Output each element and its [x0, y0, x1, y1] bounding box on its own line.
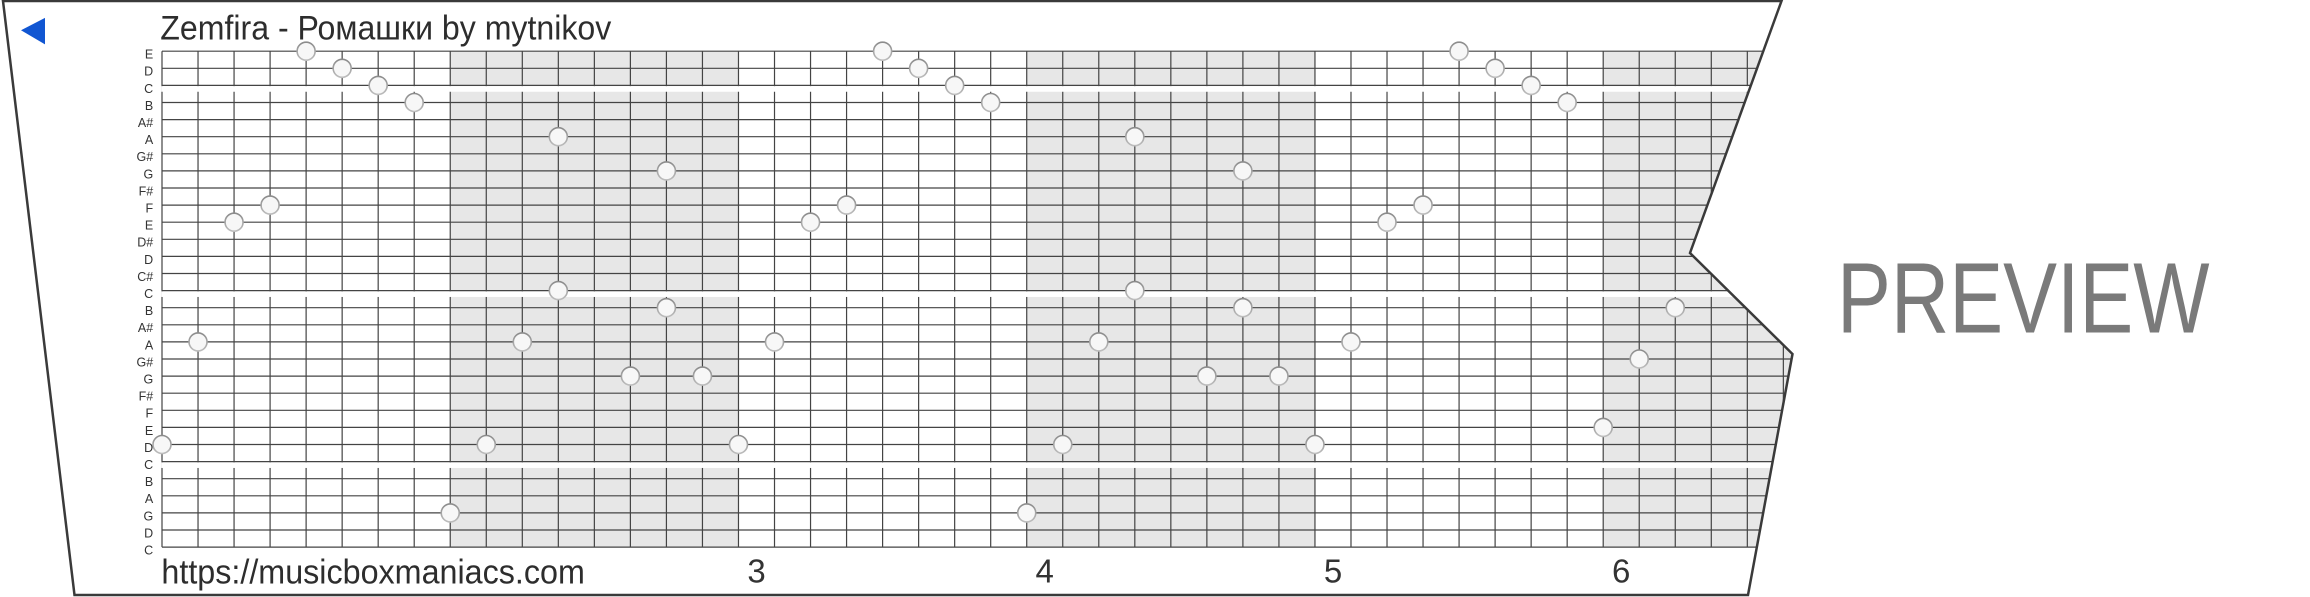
svg-text:G: G	[143, 167, 153, 181]
svg-text:E: E	[145, 48, 153, 62]
svg-text:G#: G#	[137, 150, 154, 164]
svg-text:D: D	[144, 441, 153, 455]
svg-text:F: F	[146, 407, 154, 421]
svg-text:4: 4	[1036, 553, 1054, 590]
svg-text:F: F	[146, 201, 154, 215]
svg-text:E: E	[145, 424, 153, 438]
svg-text:D: D	[144, 253, 153, 267]
svg-text:F#: F#	[139, 390, 154, 404]
svg-text:5: 5	[1324, 553, 1342, 590]
svg-text:3: 3	[747, 553, 765, 590]
svg-text:F#: F#	[139, 184, 154, 198]
svg-text:A: A	[145, 338, 154, 352]
svg-text:A: A	[145, 133, 154, 147]
svg-text:B: B	[145, 475, 153, 489]
svg-text:A: A	[145, 492, 154, 506]
svg-text:B: B	[145, 304, 153, 318]
svg-text:https://musicboxmaniacs.com: https://musicboxmaniacs.com	[161, 554, 585, 592]
svg-text:Zemfira - Ромашки by mytnikov: Zemfira - Ромашки by mytnikov	[160, 10, 612, 48]
svg-text:C: C	[144, 458, 153, 472]
svg-text:C: C	[144, 543, 153, 557]
svg-text:PREVIEW: PREVIEW	[1837, 243, 2210, 355]
svg-text:E: E	[145, 219, 153, 233]
svg-text:C: C	[144, 287, 153, 301]
svg-text:B: B	[145, 99, 153, 113]
svg-text:G#: G#	[137, 355, 154, 369]
svg-text:G: G	[143, 372, 153, 386]
svg-text:D#: D#	[137, 236, 153, 250]
svg-text:D: D	[144, 65, 153, 79]
svg-text:G: G	[143, 509, 153, 523]
svg-text:A#: A#	[138, 116, 153, 130]
svg-text:C#: C#	[137, 270, 153, 284]
svg-text:A#: A#	[138, 321, 153, 335]
svg-text:C: C	[144, 82, 153, 96]
svg-text:6: 6	[1612, 553, 1630, 590]
svg-text:D: D	[144, 526, 153, 540]
